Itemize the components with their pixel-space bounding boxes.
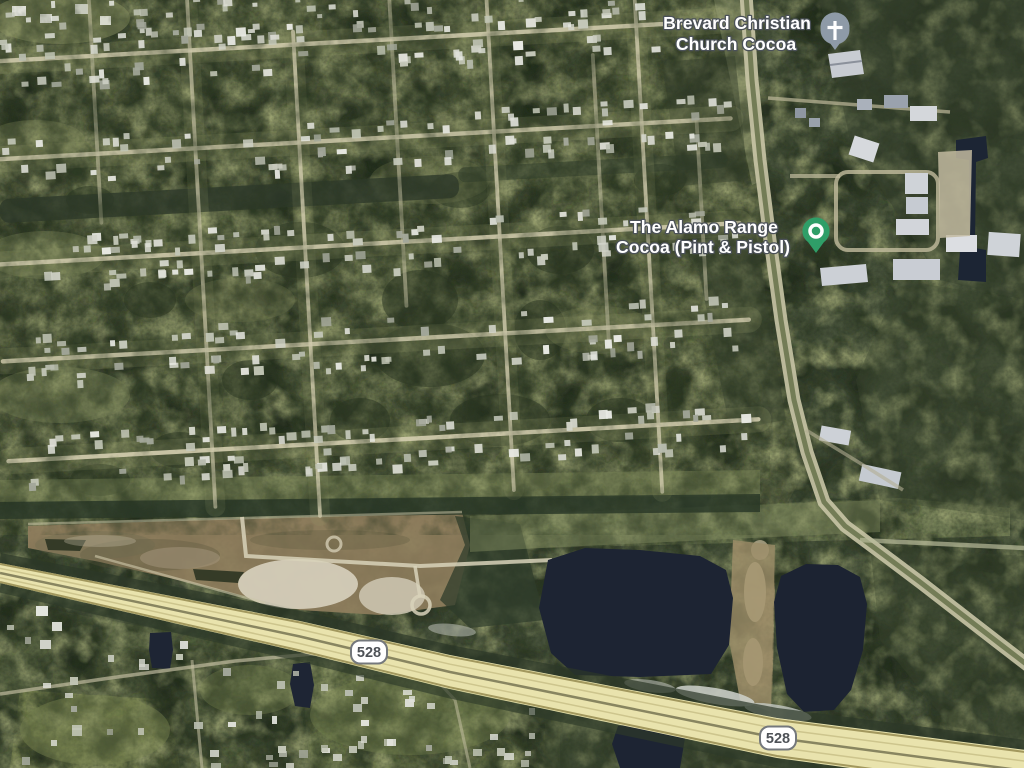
svg-text:528: 528 <box>766 731 790 747</box>
svg-text:The Alamo Range: The Alamo Range <box>630 217 778 237</box>
svg-text:Church Cocoa: Church Cocoa <box>676 34 796 54</box>
svg-text:528: 528 <box>357 645 381 661</box>
svg-text:Cocoa (Pint & Pistol): Cocoa (Pint & Pistol) <box>616 237 790 257</box>
svg-text:Brevard Christian: Brevard Christian <box>663 13 811 33</box>
